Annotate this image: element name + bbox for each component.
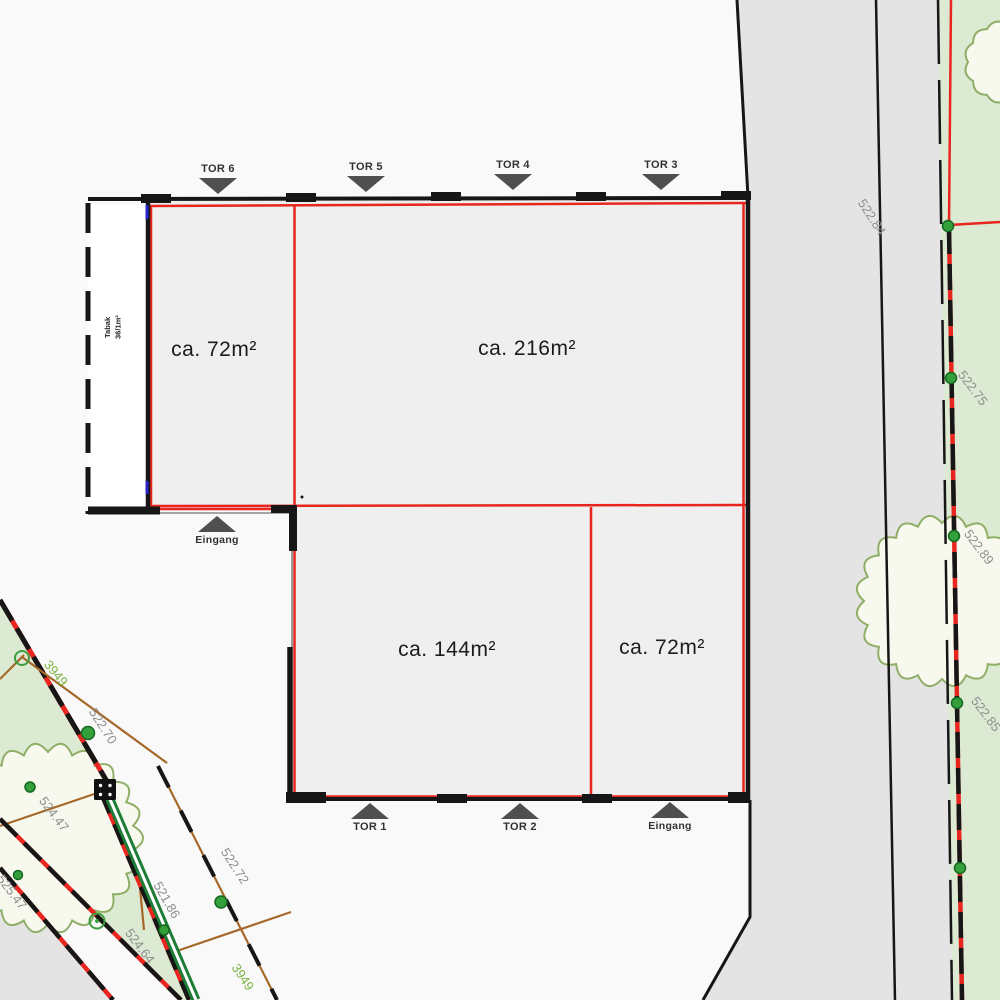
side-room-label-line1: Tabak (103, 292, 114, 362)
gate-triangle-icon (494, 174, 532, 190)
entrance-bottom: Eingang (635, 802, 705, 832)
gate-label: TOR 3 (644, 160, 678, 171)
gate-label: TOR 2 (503, 822, 537, 833)
room-area-label: ca. 72m² (619, 636, 705, 660)
gate-tor6: TOR 6 (183, 164, 253, 194)
gate-label: TOR 5 (349, 162, 383, 173)
gate-tor4: TOR 4 (478, 160, 548, 190)
gate-triangle-icon (199, 178, 237, 194)
gate-label: TOR 4 (496, 160, 530, 171)
entrance-label: Eingang (648, 821, 692, 832)
side-room-label: Tabak 36/1m² (103, 292, 133, 362)
gate-triangle-icon (501, 803, 539, 819)
side-room-label-line2: 36/1m² (114, 292, 125, 362)
gate-triangle-icon (351, 803, 389, 819)
entrance-label: Eingang (195, 535, 239, 546)
entrance-triangle-icon (651, 802, 689, 818)
gate-tor1: TOR 1 (335, 803, 405, 833)
gate-tor3: TOR 3 (626, 160, 696, 190)
gate-tor5: TOR 5 (331, 162, 401, 192)
plan-linework (0, 0, 1000, 1000)
room-area-label: ca. 216m² (478, 337, 576, 361)
gate-triangle-icon (642, 174, 680, 190)
entrance-left: Eingang (182, 516, 252, 546)
room-area-label: ca. 144m² (398, 638, 496, 662)
gate-triangle-icon (347, 176, 385, 192)
room-area-label: ca. 72m² (171, 338, 257, 362)
gate-label: TOR 1 (353, 822, 387, 833)
gate-label: TOR 6 (201, 164, 235, 175)
entrance-triangle-icon (198, 516, 236, 532)
gate-tor2: TOR 2 (485, 803, 555, 833)
utility-marker-icon (94, 779, 116, 800)
site-plan: ca. 72m² ca. 216m² ca. 144m² ca. 72m² Ta… (0, 0, 1000, 1000)
